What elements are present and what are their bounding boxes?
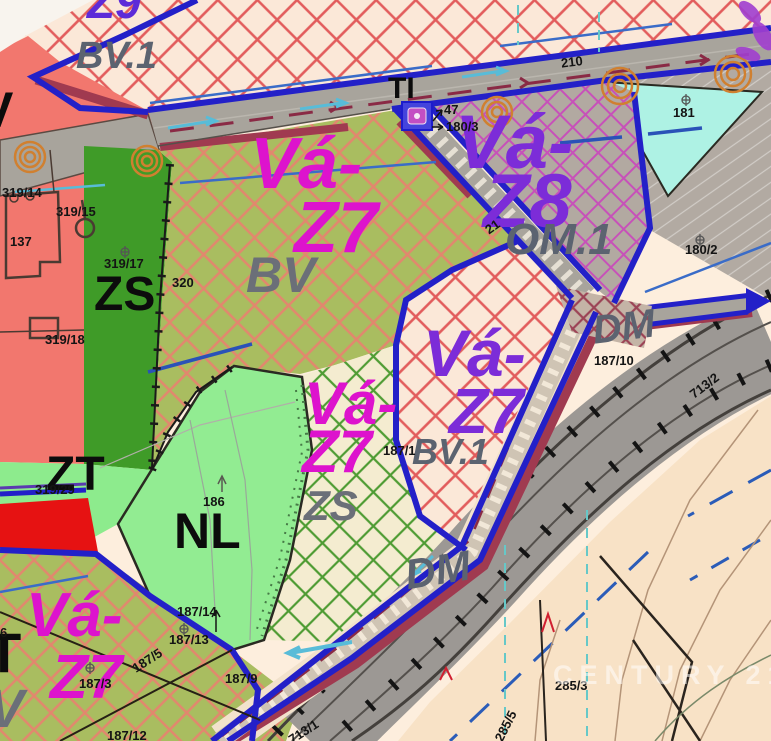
zone-label-vaz7b-1: Vá- [26,581,122,650]
zone-use-z9: BV.1 [76,35,157,77]
parcel-319-17: 319/17 [104,256,144,271]
zone-label-dm-right: DM [590,301,659,352]
parcel-319-14: 319/14 [2,185,43,200]
label-fragment-6: 6 [0,625,7,640]
parcel-137: 137 [10,234,32,249]
parcel-186: 186 [203,494,225,509]
zone-use-vaz7c: BV [246,247,319,303]
parcel-181: 181 [673,105,695,120]
parcel-187-3: 187/3 [79,676,112,691]
parcel-187-1: 187/1 [383,443,416,458]
zone-label-vaz7m-2: Z7 [300,418,375,485]
century21-watermark: CENTURY 21 [553,660,771,690]
parcel-187-13: 187/13 [169,632,209,647]
parcel-319-15: 319/15 [56,204,96,219]
parcel-187-14: 187/14 [177,604,218,619]
parcel-320: 320 [172,275,194,290]
zoning-map-canvas[interactable]: Z9 BV.1 TI Vá- Z7 BV Vá- Z8 OM.1 Vá- Z7 … [0,0,771,741]
parcel-187-12: 187/12 [107,728,147,741]
parcel-210: 210 [560,53,583,71]
zone-label-zs: ZS [94,268,155,321]
zone-use-vaz8: OM.1 [505,215,613,264]
zone-label-nl: NL [174,503,241,559]
parcel-180-2: 180/2 [685,242,718,257]
parcel-47: 47 [444,102,458,117]
label-fragment-v-gray: V [0,679,28,739]
zone-label-ti: TI [388,72,415,105]
zone-label-z9: Z9 [85,0,141,28]
zone-use-vaz7r: BV.1 [412,431,489,472]
parcel-187-9: 187/9 [225,671,258,686]
label-fragment-v-black: V [0,82,14,138]
ti-utility-icon [402,102,432,130]
parcel-319-18: 319/18 [45,332,85,347]
parcel-319-29: 319/29 [35,482,75,497]
parcel-180-3: 180/3 [446,119,479,134]
zone-use-vaz7m: ZS [303,482,358,529]
parcel-187-10: 187/10 [594,353,634,368]
zoning-map-viewport: Z9 BV.1 TI Vá- Z7 BV Vá- Z8 OM.1 Vá- Z7 … [0,0,771,741]
